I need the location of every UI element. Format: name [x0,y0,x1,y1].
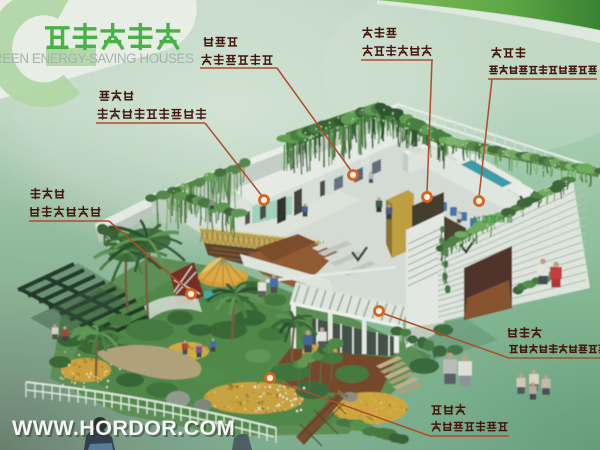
svg-text:WWW.HORDOR.COM: WWW.HORDOR.COM [12,416,235,440]
